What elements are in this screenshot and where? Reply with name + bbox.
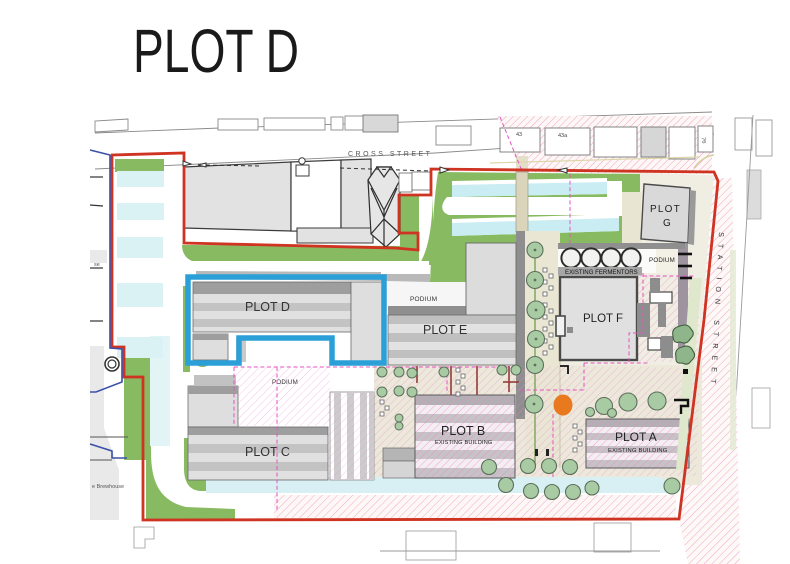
svg-text:PLOT: PLOT bbox=[650, 204, 681, 215]
svg-text:PODIUM: PODIUM bbox=[649, 257, 675, 264]
svg-text:se: se bbox=[94, 262, 100, 268]
svg-text:CROSS STREET: CROSS STREET bbox=[348, 151, 432, 158]
svg-text:43: 43 bbox=[516, 132, 522, 138]
svg-text:PODIUM: PODIUM bbox=[410, 296, 437, 303]
svg-text:EXISTING BUILDING: EXISTING BUILDING bbox=[608, 448, 668, 454]
svg-text:EXISTING BUILDING: EXISTING BUILDING bbox=[435, 440, 492, 446]
svg-text:PODIUM: PODIUM bbox=[272, 379, 298, 386]
svg-text:PLOT B: PLOT B bbox=[441, 424, 485, 438]
svg-text:PLOT C: PLOT C bbox=[245, 445, 290, 459]
svg-text:PLOT E: PLOT E bbox=[423, 323, 467, 337]
svg-text:76: 76 bbox=[700, 137, 707, 144]
svg-text:G: G bbox=[663, 218, 671, 229]
svg-text:EXISTING FERMENTORS: EXISTING FERMENTORS bbox=[565, 269, 638, 276]
svg-text:43a: 43a bbox=[558, 133, 568, 139]
svg-text:PLOT D: PLOT D bbox=[245, 300, 290, 314]
svg-text:e Brewhouse: e Brewhouse bbox=[92, 484, 124, 490]
svg-text:PLOT F: PLOT F bbox=[583, 313, 623, 325]
svg-text:PLOT D: PLOT D bbox=[133, 17, 299, 85]
svg-text:PLOT A: PLOT A bbox=[615, 430, 657, 444]
